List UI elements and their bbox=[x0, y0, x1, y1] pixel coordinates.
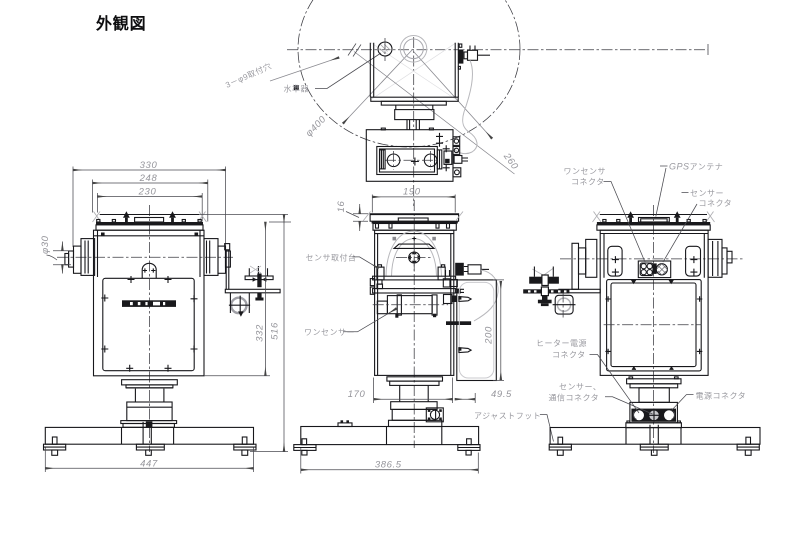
svg-text:センサー: センサー bbox=[690, 189, 724, 198]
svg-text:386.5: 386.5 bbox=[375, 460, 402, 471]
svg-text:260: 260 bbox=[500, 150, 520, 172]
svg-text:516: 516 bbox=[270, 322, 281, 340]
svg-text:248: 248 bbox=[139, 173, 158, 184]
svg-text:447: 447 bbox=[140, 458, 158, 469]
svg-text:GPSアンテナ: GPSアンテナ bbox=[669, 162, 723, 172]
svg-text:コネクタ: コネクタ bbox=[552, 351, 586, 360]
svg-text:φ30: φ30 bbox=[40, 235, 51, 254]
svg-text:170: 170 bbox=[348, 389, 366, 400]
svg-text:φ400: φ400 bbox=[304, 114, 329, 139]
svg-text:コネクタ: コネクタ bbox=[699, 199, 733, 208]
svg-text:外観図: 外観図 bbox=[95, 14, 146, 33]
svg-text:16: 16 bbox=[336, 201, 347, 213]
svg-text:230: 230 bbox=[138, 186, 157, 197]
svg-text:3－φ9取付穴: 3－φ9取付穴 bbox=[224, 61, 273, 90]
svg-text:ワンセンサ: ワンセンサ bbox=[564, 167, 607, 176]
svg-text:通信コネクタ: 通信コネクタ bbox=[549, 393, 600, 403]
svg-text:200: 200 bbox=[484, 326, 495, 345]
svg-text:センサ取付台: センサ取付台 bbox=[306, 252, 357, 262]
svg-text:190: 190 bbox=[403, 187, 421, 198]
svg-text:コネクタ: コネクタ bbox=[571, 178, 605, 187]
svg-text:332: 332 bbox=[255, 324, 266, 342]
svg-text:330: 330 bbox=[140, 160, 158, 171]
svg-text:ヒーター電源: ヒーター電源 bbox=[536, 339, 587, 348]
svg-text:センサー、: センサー、 bbox=[559, 383, 601, 392]
svg-text:アジャストフット: アジャストフット bbox=[474, 412, 541, 421]
svg-text:ワンセンサー: ワンセンサー bbox=[304, 328, 355, 337]
svg-text:水準器: 水準器 bbox=[284, 83, 310, 93]
svg-text:電源コネクタ: 電源コネクタ bbox=[696, 392, 747, 401]
svg-text:49.5: 49.5 bbox=[491, 389, 512, 400]
